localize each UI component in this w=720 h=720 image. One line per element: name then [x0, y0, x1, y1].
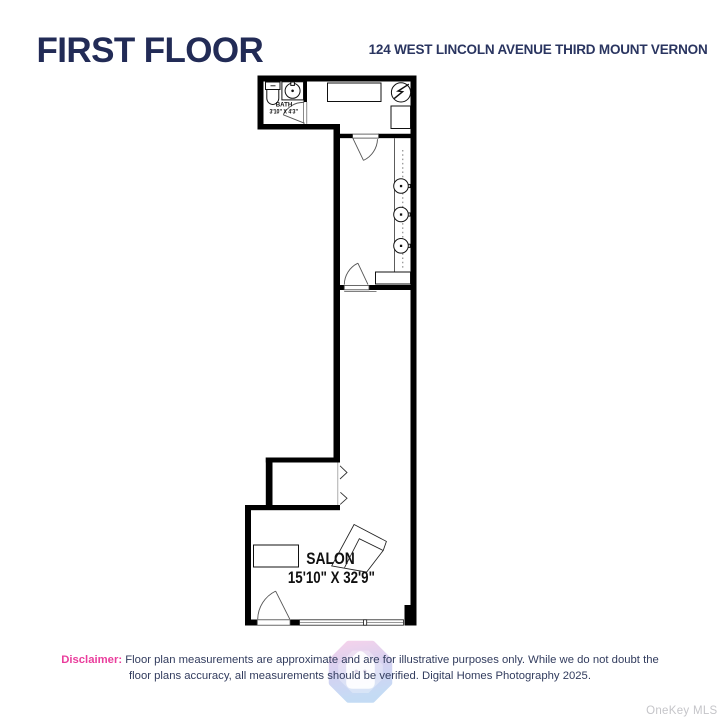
svg-text:15'10" X 32'9": 15'10" X 32'9" — [288, 569, 375, 587]
svg-text:3'10" X 4'3": 3'10" X 4'3" — [269, 109, 298, 115]
svg-text:SALON: SALON — [306, 550, 355, 568]
svg-text:BATH: BATH — [276, 101, 293, 108]
